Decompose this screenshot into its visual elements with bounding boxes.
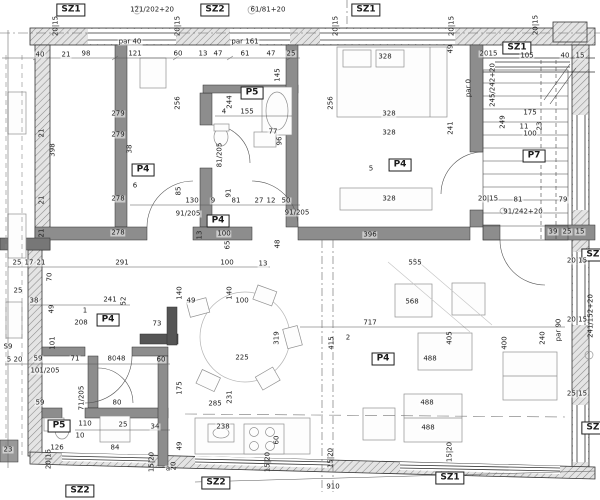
dim-label: 405 [447,330,454,345]
dim-label: 6 [132,183,138,190]
dim-label: 20|15 [566,317,588,324]
dim-label: 85 [176,186,183,197]
dim-label: 175 [522,110,537,117]
dim-label: 13 [197,230,204,241]
dim-label: 34 [150,424,161,431]
dim-label: 81 [231,198,242,205]
dim-label: 25|15 [566,391,588,398]
dim-label: 225 [234,355,249,362]
dim-label: 291 [114,260,129,267]
dim-label: par 90 [556,318,563,343]
dim-label: 285 [207,401,222,408]
dim-label: 13 [198,51,209,58]
dim-label: 81 [513,197,524,204]
dim-label: 21 [36,260,47,267]
dim-label: 121 [127,51,142,58]
dim-label: S9 [3,344,14,351]
dim-label: 319 [274,330,281,345]
floor-plan-canvas: SZ1SZ2SZ1SZ1SZ1SZ1SZ2SZ2SZ1P5P4P4P4P7P4P… [0,0,600,500]
dim-label: 278 [110,230,125,237]
dim-label: 20 [13,357,24,364]
dim-label: 59 [33,356,44,363]
dim-label: 241/152+20 [588,293,595,339]
dim-label: 27 [254,198,265,205]
tag-label: SZ1 [56,4,85,17]
dim-label: 10 [75,433,86,440]
dim-label: 396 [362,232,377,239]
dim-label: 48 [116,356,127,363]
dim-label: 249 [500,114,507,129]
tag-label: P4 [132,164,155,177]
tag-label: P4 [372,353,395,366]
dim-label: 155 [239,109,254,116]
dim-label: 96 [277,136,284,147]
dim-label: 20|15 [566,258,588,265]
dim-label: 23 [3,447,14,454]
dim-label: 73 [152,321,163,328]
dim-label: 568 [404,299,419,306]
dim-label: 49 [49,304,56,315]
dim-label: 49 [186,298,197,305]
dim-label: 80 [112,400,123,407]
dim-label: 20|15 [53,15,60,37]
dim-label: 488 [419,400,434,407]
dim-label: par 0 [466,78,473,98]
dim-label: 38 [127,144,134,155]
dim-label: 100 [216,231,231,238]
dim-label: 81/205 [217,142,224,169]
dim-label: 13 [258,261,269,268]
dim-label: 60 [156,357,167,364]
dim-label: 555 [407,260,422,267]
tag-label: P4 [389,159,412,172]
dim-label: 91/205 [175,211,202,218]
dim-label: 4 [221,109,227,116]
dim-label: 328 [381,196,396,203]
tag-label: SZ2 [201,477,230,490]
dim-label: 9 [210,198,216,205]
dim-label: 25 [562,229,573,236]
dim-label: 47 [213,51,224,58]
dim-label: 84 [110,445,121,452]
dim-label: 279 [110,111,125,118]
dim-label: 21 [61,52,72,59]
dim-label: 488 [420,425,435,432]
dim-label: 12 [266,198,277,205]
dim-label: 231 [227,389,234,404]
dim-label: 20 [171,461,178,472]
tag-label: SZ1 [435,472,464,485]
tag-label: SZ2 [65,485,94,498]
dim-label: 70 [47,272,54,283]
dim-label: 20|15 [333,15,340,37]
dim-label: 121/202+20 [129,7,175,14]
dim-label: 20|15 [533,14,540,36]
dim-label: 100 [522,131,537,138]
dim-label: 2 [345,335,351,342]
tag-label: P4 [97,314,120,327]
dim-label: 39 [548,229,559,236]
dim-label: 15 [488,51,499,58]
dim-label: 59 [35,400,46,407]
dim-label: 140 [227,285,234,300]
tag-label: P5 [48,420,71,433]
tag-label: SZ1 [351,4,380,17]
dim-label: 91/205 [284,210,311,217]
dim-label: 25 [12,260,23,267]
dim-label: 15|20 [447,441,454,463]
dim-label: 15|20 [328,447,335,469]
dim-label: 20|15 [46,448,53,470]
dim-label: 175 [177,380,184,395]
dim-label: 1 [82,308,88,315]
dim-label: 98 [81,51,92,58]
dim-label: 415 [329,335,336,350]
dim-label: 25 [118,422,129,429]
dim-label: 65 [225,240,232,251]
tag-label: P4 [207,215,230,228]
dim-label: a [165,466,171,473]
dim-label: 240 [540,330,547,345]
dim-label: 40 [560,53,571,60]
tag-label: P7 [523,150,546,163]
dim-label: 398 [50,142,57,157]
dim-label: 20|15 [449,15,456,37]
dim-label: 130 [184,198,199,205]
dim-label: 100 [219,260,234,267]
dim-label: 256 [328,95,335,110]
dim-label: 25 [13,288,24,295]
dim-label: 61 [240,51,251,58]
dim-label: 328 [377,54,392,61]
dim-label: 71/205 [79,385,86,412]
dim-label: 278 [110,196,125,203]
labels-layer: SZ1SZ2SZ1SZ1SZ1SZ1SZ2SZ2SZ1P5P4P4P4P7P4P… [0,0,600,500]
dim-label: 49 [177,441,184,452]
dim-label: 50 [281,198,292,205]
dim-label: 208 [73,320,88,327]
dim-label: 400 [502,335,509,350]
dim-label: 77 [268,129,279,136]
dim-label: 79 [558,197,569,204]
dim-label: par 161 [230,39,259,46]
dim-label: 15|20 [265,451,272,473]
dim-label: 279 [110,132,125,139]
dim-label: 48 [275,239,282,250]
dim-label: 20|15 [175,15,182,37]
dim-label: 241 [448,120,455,135]
dim-label: par 40 [118,39,143,46]
dim-label: 47 [266,51,277,58]
dim-label: 244 [227,94,234,109]
dim-label: 238 [215,424,230,431]
tag-label: SZ1 [581,422,600,435]
dim-label: 488 [422,356,437,363]
dim-label: 245/242+20 [490,62,497,108]
dim-label: 328 [381,111,396,118]
dim-label: 60 [173,51,184,58]
dim-label: 15 [575,53,586,60]
tag-label: SZ2 [200,4,229,17]
dim-label: 140 [177,285,184,300]
dim-label: 105 [519,53,534,60]
dim-label: 38 [29,298,40,305]
dim-label: 21 [39,128,46,139]
dim-label: 110 [77,421,92,428]
dim-label: 101 [50,335,57,350]
dim-label: 100 [234,298,249,305]
dim-label: 40 [35,52,46,59]
dim-label: 49 [448,44,455,55]
dim-label: 328 [381,130,396,137]
dim-label: 101/205 [29,368,60,375]
tag-label: P5 [241,87,264,100]
dim-label: 60 [274,435,281,446]
dim-label: 21 [39,195,46,206]
dim-label: 5 [6,357,12,364]
dim-label: 52 [121,296,128,307]
dim-label: 71 [70,356,81,363]
dim-label: 15|20 [149,451,156,473]
dim-label: 241 [102,297,117,304]
dim-label: 910 [325,484,340,491]
dim-label: 256 [175,95,182,110]
dim-label: 21 [39,228,46,239]
dim-label: 15 [575,229,586,236]
dim-label: 91/242+20 [502,209,543,216]
dim-label: 20|15 [477,196,499,203]
dim-label: 17 [24,260,35,267]
dim-label: 25 [286,51,297,58]
dim-label: 61/81+20 [250,7,287,14]
dim-label: 145 [275,67,282,82]
dim-label: 717 [362,320,377,327]
dim-label: 5 [368,166,374,173]
